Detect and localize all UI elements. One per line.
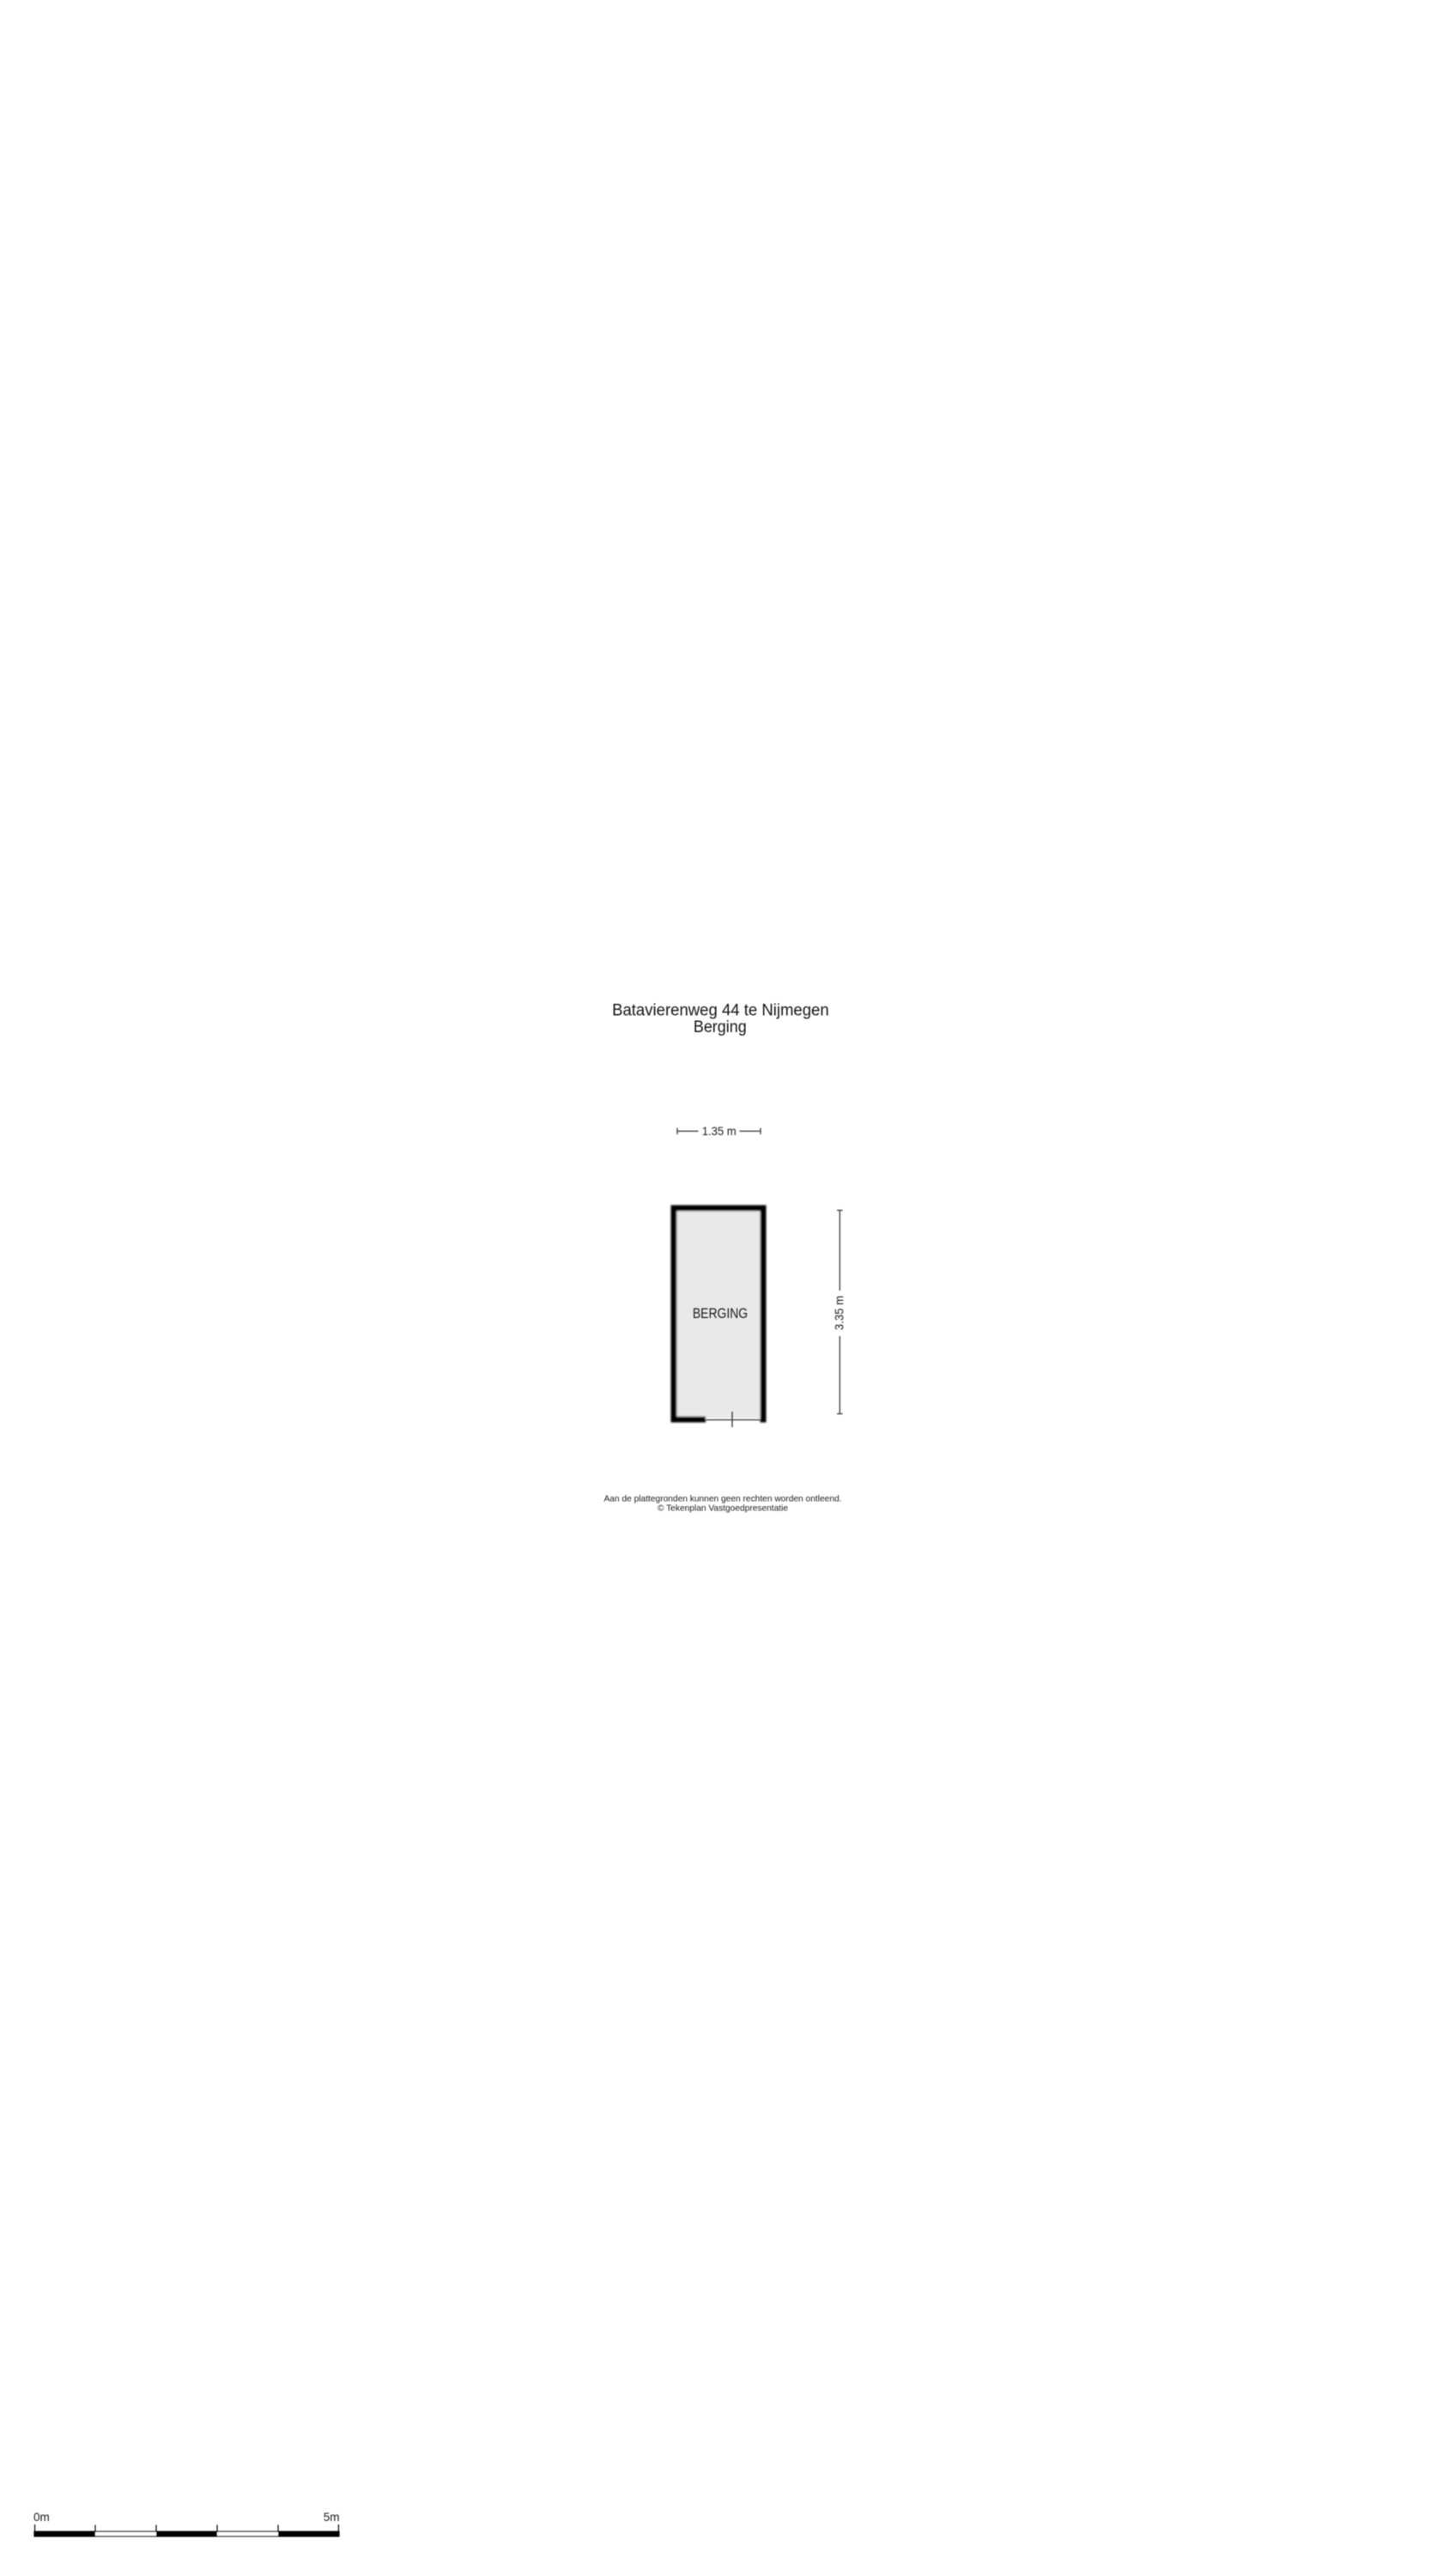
svg-text:3.35 m: 3.35 m	[832, 1296, 846, 1330]
svg-text:Aan de plattegronden kunnen ge: Aan de plattegronden kunnen geen rechten…	[604, 1494, 842, 1504]
svg-text:1.35 m: 1.35 m	[702, 1124, 737, 1138]
svg-text:BERGING: BERGING	[693, 1306, 748, 1321]
svg-text:Berging: Berging	[694, 1018, 747, 1036]
svg-text:5m: 5m	[324, 2511, 340, 2524]
svg-text:0m: 0m	[33, 2511, 50, 2524]
svg-text:Batavierenweg 44 te Nijmegen: Batavierenweg 44 te Nijmegen	[612, 1002, 829, 1020]
svg-text:© Tekenplan Vastgoedpresentati: © Tekenplan Vastgoedpresentatie	[658, 1504, 788, 1513]
